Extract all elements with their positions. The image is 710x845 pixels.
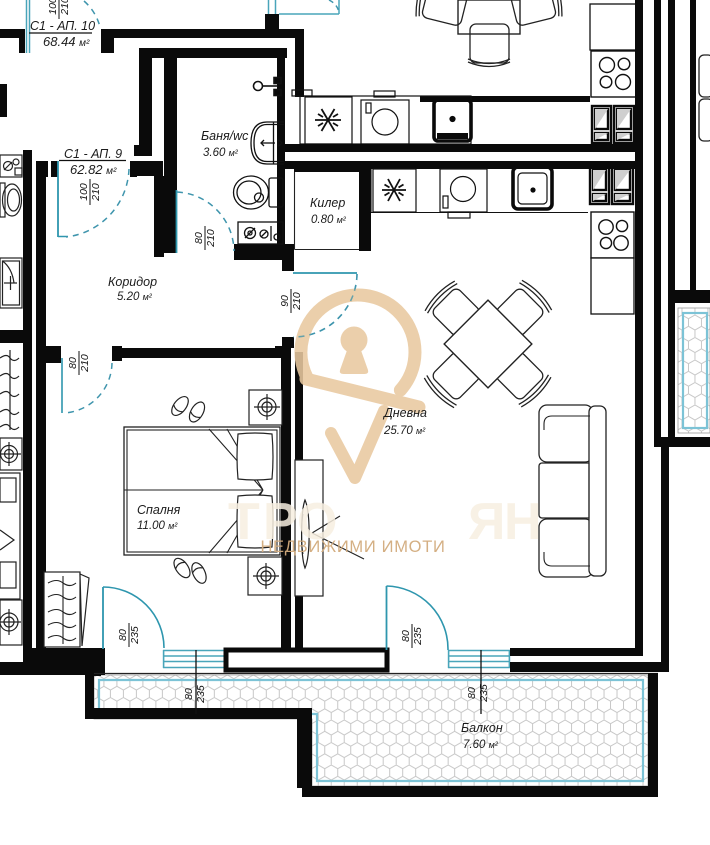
svg-text:235: 235 <box>195 685 207 704</box>
svg-text:80: 80 <box>400 630 412 642</box>
svg-text:С1 - АП. 9: С1 - АП. 9 <box>64 147 122 161</box>
svg-text:Килер: Килер <box>310 196 345 210</box>
svg-text:210: 210 <box>79 354 91 373</box>
svg-text:80: 80 <box>193 232 205 244</box>
svg-text:100: 100 <box>78 183 90 201</box>
svg-text:Н: Н <box>504 493 542 551</box>
svg-text:210: 210 <box>205 229 217 248</box>
svg-text:Спалня: Спалня <box>137 503 181 517</box>
svg-text:3.60 м²: 3.60 м² <box>203 147 239 159</box>
svg-text:90: 90 <box>279 295 291 307</box>
svg-text:25.70 м²: 25.70 м² <box>383 425 426 437</box>
svg-text:Я: Я <box>468 493 505 551</box>
svg-text:Т: Т <box>228 493 260 551</box>
svg-text:11.00 м²: 11.00 м² <box>137 520 178 532</box>
svg-text:80: 80 <box>183 688 195 700</box>
svg-text:80: 80 <box>466 687 478 699</box>
svg-text:Баня/wc: Баня/wc <box>201 129 249 143</box>
svg-text:80: 80 <box>67 357 79 369</box>
svg-text:Дневна: Дневна <box>382 406 427 420</box>
svg-text:100: 100 <box>47 0 59 15</box>
svg-text:0.80 м²: 0.80 м² <box>311 214 347 226</box>
svg-text:210: 210 <box>90 183 102 202</box>
svg-text:5.20 м²: 5.20 м² <box>117 291 153 303</box>
svg-text:235: 235 <box>412 627 424 646</box>
svg-text:210: 210 <box>59 0 71 16</box>
svg-text:210: 210 <box>291 292 303 311</box>
svg-text:С1 - АП. 10: С1 - АП. 10 <box>30 19 95 33</box>
svg-text:235: 235 <box>478 684 490 703</box>
svg-text:НЕДВИЖИМИ ИМОТИ: НЕДВИЖИМИ ИМОТИ <box>260 538 445 556</box>
svg-text:235: 235 <box>129 626 141 645</box>
svg-text:Балкон: Балкон <box>461 721 503 735</box>
svg-text:7.60 м²: 7.60 м² <box>463 739 499 751</box>
svg-text:Коридор: Коридор <box>108 275 157 289</box>
svg-text:80: 80 <box>117 629 129 641</box>
